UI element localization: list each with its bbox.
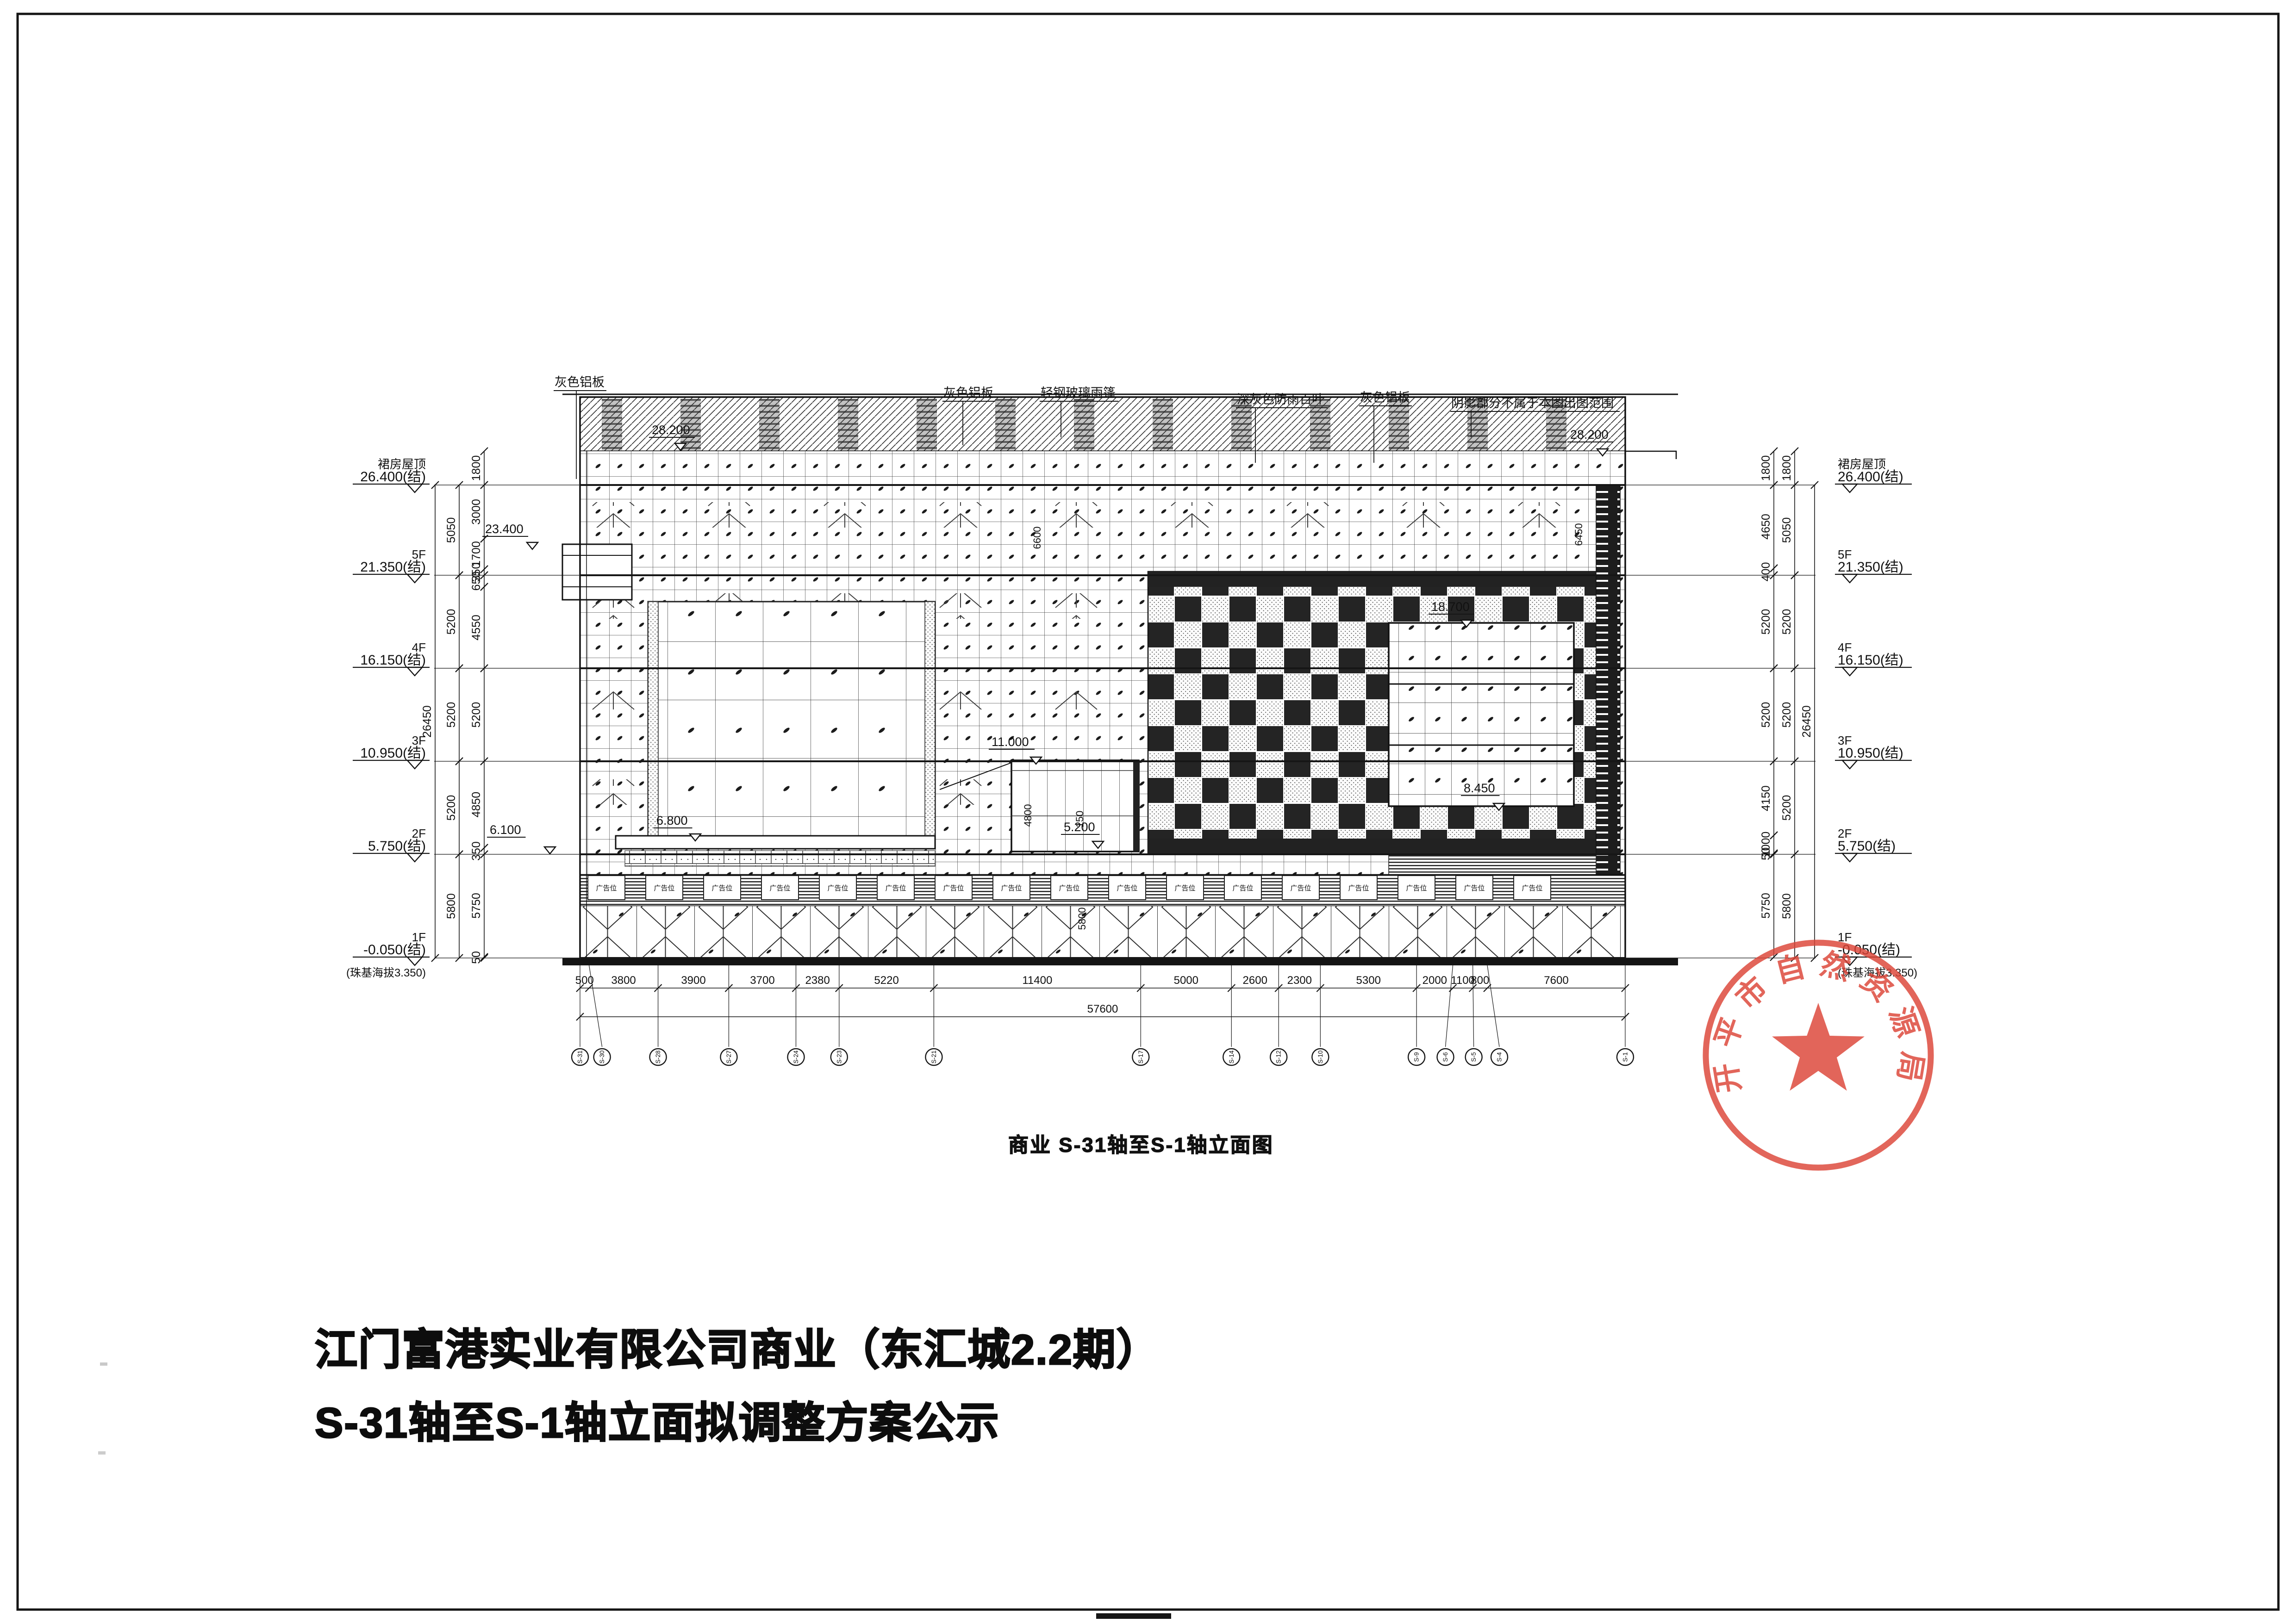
dim-value: 26450	[421, 705, 434, 738]
drawing-caption: 商业 S-31轴至S-1轴立面图	[1008, 1128, 1274, 1158]
dim-value: 5200	[1780, 795, 1793, 821]
canopy-6800-slab	[616, 836, 935, 849]
elevation-marker: 18.700	[1431, 600, 1470, 614]
interior-dim: 4800	[1022, 804, 1034, 827]
dim-value: 5200	[1759, 702, 1772, 728]
scan-mark-bottom	[1096, 1613, 1171, 1619]
dim-value: 5050	[445, 517, 458, 543]
ad-board-label: 广告位	[1522, 884, 1542, 892]
elevation-marker: 8.450	[1464, 781, 1495, 795]
axis-label: S-14	[1228, 1050, 1235, 1063]
marker-triangle-icon	[527, 542, 538, 549]
elevation-marker: 11.000	[992, 735, 1029, 749]
level-value-left: -0.050(结)	[363, 942, 426, 958]
bottom-dim-value: 2600	[1243, 974, 1267, 987]
datum-note-left: (珠基海拔3.350)	[346, 967, 426, 979]
axis-label: S-30	[599, 1051, 605, 1064]
dim-value: 3000	[470, 499, 483, 525]
bottom-dim-value: 2000	[1423, 974, 1447, 987]
dim-value: 4650	[1759, 514, 1772, 540]
level-value-left: 10.950(结)	[360, 746, 426, 761]
ad-board-label: 广告位	[711, 884, 732, 892]
level-value-left: 26.400(结)	[360, 469, 426, 485]
axis-label: S-17	[1137, 1051, 1144, 1064]
bottom-dim-value: 5000	[1174, 974, 1198, 987]
axis-label: S-23	[836, 1051, 842, 1064]
level-value-right: 26.400(结)	[1838, 469, 1903, 485]
bottom-dim-value: 5220	[874, 974, 898, 987]
bottom-dim-value: 800	[1471, 974, 1489, 987]
level-triangle-icon	[407, 667, 422, 676]
scanned-page: 裙房屋顶26.400(结)裙房屋顶26.400(结)5F21.350(结)5F2…	[0, 0, 2296, 1623]
ground-storefront	[580, 906, 1625, 958]
bottom-dim-value: 3800	[611, 974, 636, 987]
material-label: 轻钢玻璃雨篷	[1041, 386, 1116, 400]
level-triangle-icon	[407, 957, 422, 965]
dim-value: 650	[470, 572, 483, 591]
title-line-2: S-31轴至S-1轴立面拟调整方案公示	[315, 1387, 1160, 1460]
dim-value: 5750	[1759, 893, 1772, 919]
ad-board-label: 广告位	[596, 884, 617, 892]
bottom-dim-value: 2380	[805, 974, 830, 987]
ad-board-label: 广告位	[1406, 884, 1427, 892]
level-triangle-icon	[407, 853, 422, 862]
elevation-marker: 28.200	[652, 423, 690, 437]
ad-board-label: 广告位	[885, 884, 906, 892]
level-value-right: 16.150(结)	[1838, 653, 1903, 668]
level-value-left: 16.150(结)	[360, 653, 426, 668]
bottom-dim-value: 3900	[681, 974, 705, 987]
louver-band	[1389, 854, 1596, 875]
level-value-right: 21.350(结)	[1838, 560, 1903, 575]
axis-label: S-12	[1275, 1051, 1282, 1064]
material-label: 深灰色防雨百叶	[1237, 392, 1324, 406]
level-triangle-icon	[1842, 667, 1857, 676]
axis-label: S-24	[792, 1050, 799, 1063]
level-triangle-icon	[1842, 760, 1857, 769]
ad-board-label: 广告位	[943, 884, 964, 892]
checker-top-band	[1148, 572, 1604, 587]
dim-value: 5750	[470, 893, 483, 919]
material-label: 阴影部分不属于本图出图范围	[1451, 396, 1614, 410]
ad-board-label: 广告位	[827, 884, 848, 892]
right-parapet-step	[1625, 451, 1676, 459]
interior-dim: 6600	[1031, 527, 1043, 549]
checker-bottom-band	[1148, 839, 1604, 854]
marker-triangle-icon	[544, 847, 555, 854]
dim-value: 4550	[470, 615, 483, 640]
ad-board-label: 广告位	[1290, 884, 1311, 892]
dim-value: 5200	[470, 702, 483, 728]
axis-label: S-9	[1413, 1052, 1420, 1062]
material-label: 灰色铝板	[943, 386, 993, 400]
elevation-marker: 23.400	[485, 522, 524, 536]
ad-board-label: 广告位	[1059, 884, 1079, 892]
ground-line	[562, 958, 1678, 965]
interior-dim: 150	[1074, 811, 1086, 828]
level-triangle-icon	[407, 484, 422, 492]
bottom-dim-value: 2300	[1287, 974, 1312, 987]
bottom-dim-value: 3700	[750, 974, 774, 987]
canopy-6800-fascia	[625, 851, 935, 866]
dim-value: 4150	[1759, 785, 1772, 811]
dim-value: 50	[470, 951, 483, 964]
material-label: 灰色铝板	[1360, 391, 1410, 404]
axis-label: S-10	[1317, 1051, 1324, 1064]
dim-value: 5200	[445, 702, 458, 728]
axis-label: S-28	[655, 1051, 661, 1064]
level-value-left: 5.750(结)	[368, 839, 426, 854]
dim-value: 1800	[1780, 455, 1793, 481]
dim-value: 5200	[1780, 609, 1793, 635]
scan-speck-1	[100, 1362, 107, 1366]
scan-speck-2	[98, 1451, 106, 1455]
storefront-opening	[648, 602, 935, 836]
bottom-dim-value: 7600	[1544, 974, 1568, 987]
ad-board-label: 广告位	[1001, 884, 1022, 892]
axis-label: S-4	[1496, 1052, 1503, 1062]
level-triangle-icon	[1842, 484, 1857, 492]
axis-label: S-31	[577, 1051, 584, 1064]
level-triangle-icon	[1842, 853, 1857, 862]
level-triangle-icon	[1842, 574, 1857, 583]
dim-value: 5800	[1780, 893, 1793, 919]
axis-label: S-21	[930, 1051, 937, 1064]
elevation-marker: 6.100	[490, 823, 521, 837]
bottom-dim-value: 5300	[1356, 974, 1381, 987]
dim-value: 1800	[1759, 455, 1772, 481]
interior-dim: 5800	[1076, 908, 1088, 930]
ad-board-label: 广告位	[1464, 884, 1485, 892]
dim-value: 5200	[1780, 702, 1793, 728]
dim-value: 5200	[445, 609, 458, 635]
box-23400	[562, 544, 632, 600]
ad-board-label: 广告位	[1174, 884, 1195, 892]
bottom-dim-value: 11400	[1022, 974, 1052, 987]
level-value-right: 10.950(结)	[1838, 746, 1903, 761]
dim-value: 4850	[470, 792, 483, 818]
total-dim-value: 57600	[1087, 1003, 1118, 1015]
bottom-dim-value: 500	[575, 974, 594, 987]
material-label: 灰色铝板	[555, 375, 605, 389]
axis-label: S-6	[1442, 1052, 1449, 1062]
elevation-marker: 6.800	[656, 814, 688, 827]
interior-dim: 6450	[1573, 523, 1585, 546]
level-triangle-icon	[407, 574, 422, 583]
axis-label: S-5	[1470, 1052, 1477, 1062]
ad-board-label: 广告位	[1117, 884, 1137, 892]
checker-glass-opening	[1389, 623, 1574, 806]
dim-value: 26450	[1800, 705, 1813, 738]
dim-value: 5800	[445, 893, 458, 919]
level-triangle-icon	[407, 760, 422, 769]
level-value-right: 5.750(结)	[1838, 839, 1896, 854]
title-line-1: 江门富港实业有限公司商业（东汇城2.2期）	[315, 1313, 1160, 1387]
official-stamp: 开平市自然资源局	[1706, 943, 1931, 1168]
ad-board-label: 广告位	[654, 884, 674, 892]
dim-value: 1800	[470, 455, 483, 481]
dim-value: 5050	[1780, 517, 1793, 543]
dim-value: 5200	[1759, 609, 1772, 635]
axis-label: S-1	[1622, 1052, 1628, 1062]
dim-value: 5200	[445, 795, 458, 821]
stamp-star-icon	[1772, 1003, 1865, 1091]
title-block: 江门富港实业有限公司商业（东汇城2.2期） S-31轴至S-1轴立面拟调整方案公…	[315, 1313, 1160, 1460]
axis-label: S-27	[725, 1051, 732, 1064]
ad-board-label: 广告位	[1348, 884, 1369, 892]
ad-board-label: 广告位	[769, 884, 790, 892]
elevation-marker: 28.200	[1570, 428, 1609, 442]
level-value-left: 21.350(结)	[360, 560, 426, 575]
ad-board-label: 广告位	[1232, 884, 1253, 892]
